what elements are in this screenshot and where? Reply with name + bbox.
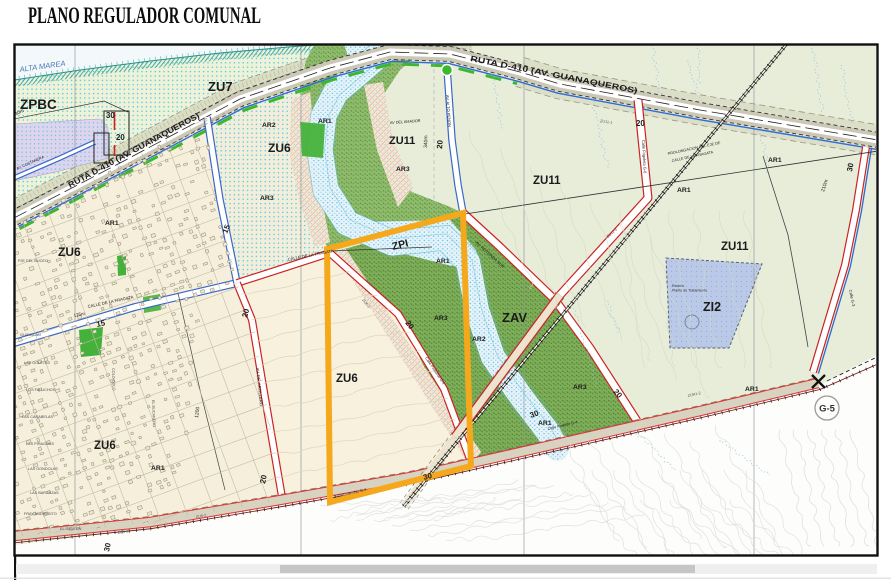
svg-text:AR1: AR1	[151, 465, 165, 472]
svg-text:AR1: AR1	[105, 220, 119, 227]
svg-text:G-5: G-5	[819, 404, 836, 415]
svg-text:340m: 340m	[423, 135, 429, 148]
svg-text:PLANO REGULADOR COMUNAL: PLANO REGULADOR COMUNAL	[28, 3, 261, 29]
svg-text:ZU6: ZU6	[336, 373, 358, 385]
svg-text:LAS GONDOLAS: LAS GONDOLAS	[28, 467, 58, 471]
svg-text:AR3: AR3	[573, 384, 587, 391]
svg-text:AR1: AR1	[768, 157, 782, 164]
svg-text:ZPBC: ZPBC	[20, 97, 57, 112]
svg-text:AR2: AR2	[472, 336, 486, 343]
svg-text:AR3: AR3	[396, 166, 410, 173]
svg-text:LOS FALUCHOS: LOS FALUCHOS	[26, 388, 56, 392]
svg-text:AR3: AR3	[434, 315, 448, 322]
svg-text:ZU6: ZU6	[268, 141, 291, 155]
svg-text:ZI2: ZI2	[703, 300, 721, 314]
svg-text:COLO COLO: COLO COLO	[111, 368, 116, 391]
svg-text:AR2: AR2	[262, 122, 276, 129]
svg-text:GUAYACAN: GUAYACAN	[20, 333, 41, 337]
svg-text:LAS GOLETAS: LAS GOLETAS	[24, 361, 50, 365]
svg-text:AR1: AR1	[677, 187, 691, 194]
svg-text:PJE DEL BUCEO: PJE DEL BUCEO	[18, 259, 48, 263]
svg-text:AR1: AR1	[745, 386, 759, 393]
svg-text:30: 30	[106, 111, 115, 120]
svg-text:ZAV: ZAV	[502, 310, 527, 325]
svg-text:AR1: AR1	[318, 118, 332, 125]
svg-text:ZU6: ZU6	[58, 245, 81, 259]
svg-text:ZU7: ZU7	[208, 79, 233, 94]
svg-text:ZU6: ZU6	[94, 440, 116, 452]
svg-text:LAS BARCAZAS: LAS BARCAZAS	[30, 491, 59, 495]
svg-text:20: 20	[435, 139, 445, 149]
svg-text:Recinto: Recinto	[672, 284, 684, 288]
svg-text:20: 20	[116, 133, 125, 142]
svg-text:AR1: AR1	[436, 258, 450, 265]
svg-text:ZU11: ZU11	[533, 175, 561, 187]
svg-text:ZU11: ZU11	[389, 135, 415, 147]
svg-text:FRAY ANDRESITO: FRAY ANDRESITO	[24, 512, 57, 516]
svg-text:LAS PIRAGUAS: LAS PIRAGUAS	[26, 442, 54, 446]
svg-text:20: 20	[636, 119, 645, 128]
svg-text:ZU11: ZU11	[721, 241, 749, 253]
svg-text:AR3: AR3	[260, 195, 274, 202]
svg-text:Planta de Tratamiento: Planta de Tratamiento	[672, 289, 707, 293]
svg-text:EL GALEON: EL GALEON	[60, 527, 82, 531]
svg-text:LAS CARABELAS: LAS CARABELAS	[22, 415, 53, 419]
